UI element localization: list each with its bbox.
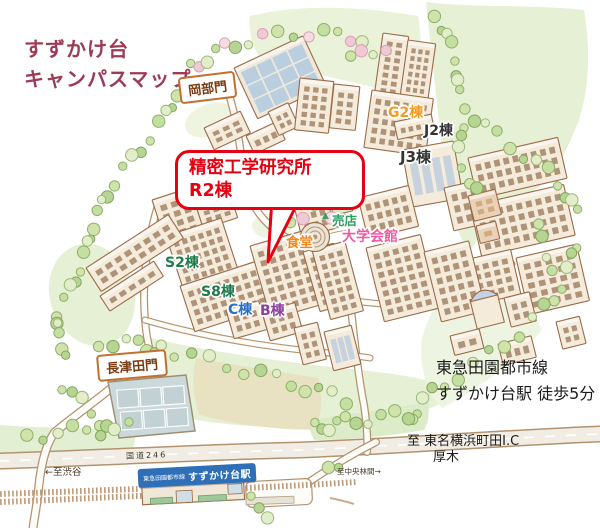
label-s2-building: S2棟 xyxy=(165,256,199,270)
r2-callout: 精密工学研究所 R2棟 xyxy=(175,150,365,210)
label-cafeteria: 食堂 xyxy=(286,237,313,251)
direction-tomei: 至 東名横浜町田I.C 厚木 xyxy=(407,434,519,467)
label-s8-building: S8棟 xyxy=(201,285,235,299)
shop-tree-icon: ▲ xyxy=(322,211,329,221)
r2-callout-line2: R2棟 xyxy=(189,180,351,203)
label-route246: 国道246 xyxy=(126,449,168,461)
suzukakedai-campus-map: すずかけ台 キャンパスマップ 岡部門 長津田門 精密工学研究所 R2棟 G2棟 … xyxy=(0,0,600,528)
map-title: すずかけ台 キャンパスマップ xyxy=(24,34,191,94)
direction-atsugi: 厚木 xyxy=(407,450,519,466)
access-info: 東急田園都市線 すずかけ台駅 徒歩5分 xyxy=(436,355,595,406)
map-title-line2: キャンパスマップ xyxy=(24,64,191,94)
tennis-courts xyxy=(108,375,195,438)
label-university-union: 大学会館 xyxy=(342,230,398,244)
label-shop: 売店 xyxy=(332,215,357,228)
map-title-line1: すずかけ台 xyxy=(24,34,191,64)
access-line2: すずかけ台駅 徒歩5分 xyxy=(436,381,595,407)
label-j2-building: J2棟 xyxy=(424,124,453,138)
label-b-building: B棟 xyxy=(260,304,285,318)
direction-tomei-line1: 至 東名横浜町田I.C xyxy=(407,434,519,450)
r2-callout-line1: 精密工学研究所 xyxy=(189,157,351,180)
label-j3-building: J3棟 xyxy=(400,150,431,165)
direction-shibuya: ←至渋谷 xyxy=(45,464,81,478)
station-sign-line-name: 東急田園都市線 xyxy=(143,472,185,483)
label-c-building: C棟 xyxy=(228,303,252,317)
label-g2-building: G2棟 xyxy=(388,106,423,120)
direction-chuorinkan: 至中央林間→ xyxy=(337,466,381,477)
station-sign-station-name: すずかけ台駅 xyxy=(188,465,252,483)
access-line1: 東急田園都市線 xyxy=(436,355,595,381)
